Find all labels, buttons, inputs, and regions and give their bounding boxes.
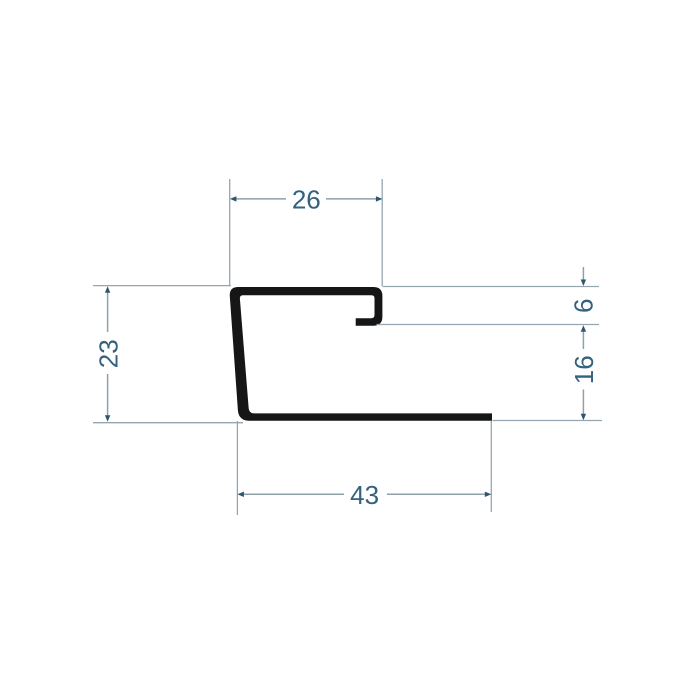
- svg-text:26: 26: [292, 185, 321, 215]
- svg-text:6: 6: [568, 299, 598, 313]
- svg-text:23: 23: [93, 339, 123, 368]
- svg-text:43: 43: [350, 480, 379, 510]
- svg-text:16: 16: [569, 355, 599, 384]
